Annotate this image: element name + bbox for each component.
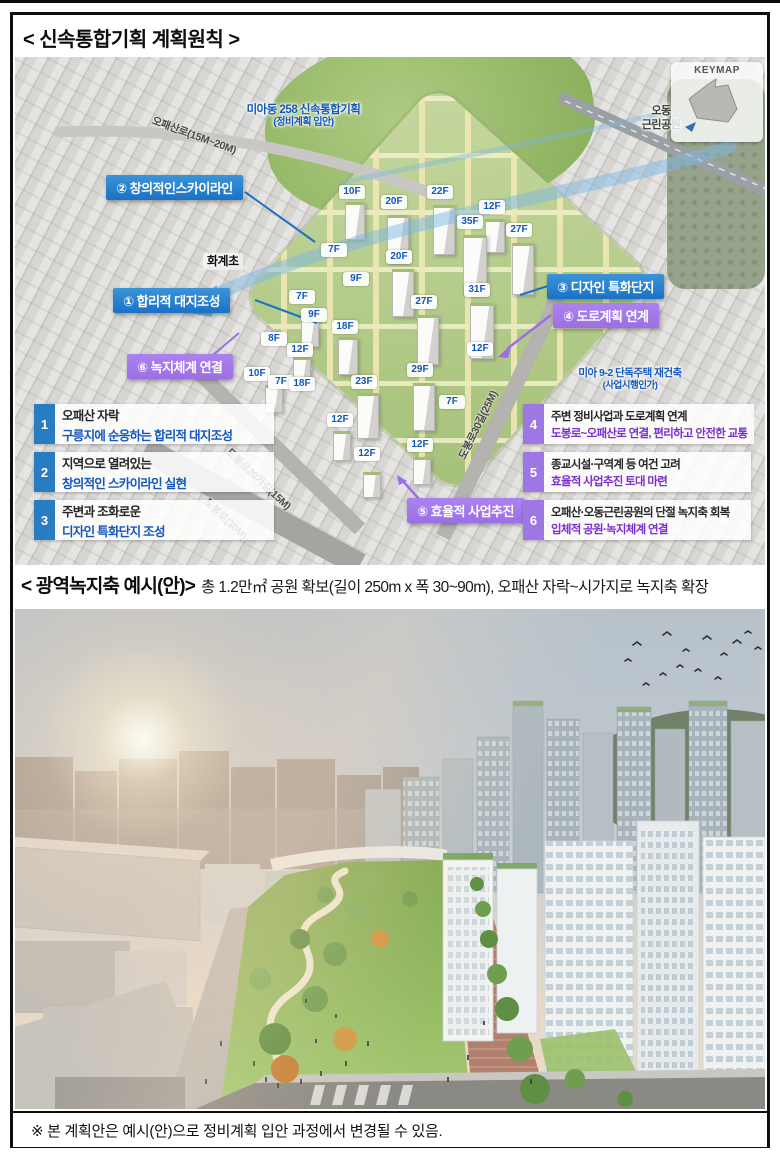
floor-label: 18F [289,377,315,391]
floor-label: 12F [354,447,380,461]
planning-document-page: < 신속통합기획 계획원칙 > [0,0,780,1161]
principle-4: 4 주변 정비사업과 도로계획 연계 도봉로~오패산로 연결, 편리하고 안전한… [523,404,751,444]
floor-label: 35F [457,215,483,229]
principle-1: 1 오패산 자락 구릉지에 순응하는 합리적 대지조성 [34,404,274,444]
keymap-shape [671,77,763,141]
principle-2: 2 지역으로 열려있는 창의적인 스카이라인 실현 [34,452,274,492]
principle-number: 6 [523,500,544,540]
footnote-bar: ※ 본 계획안은 예시(안)으로 정비계획 입안 과정에서 변경될 수 있음. [13,1111,767,1147]
principle-6: 6 오패산·오동근린공원의 단절 녹지축 회복 입체적 공원·녹지체계 연결 [523,500,751,540]
green-axis-rendering-image [15,609,765,1109]
site-name-line1: 미아동 258 신속통합기획 [211,103,396,117]
floor-label: 29F [407,363,433,377]
floor-label: 12F [467,342,493,356]
pointer-line-skyline [245,192,315,242]
document-frame: < 신속통합기획 계획원칙 > [10,12,770,1148]
principle-3: 3 주변과 조화로운 디자인 특화단지 조성 [34,500,274,540]
pointer-arrowhead-road [498,344,512,358]
principle-line1: 주변과 조화로운 [62,501,267,520]
principle-line2: 입체적 공원·녹지체계 연결 [551,521,744,537]
principle-line1: 오패산 자락 [62,405,267,424]
floor-label: 20F [386,250,412,264]
floor-label: 23F [351,375,377,389]
principle-line2: 창의적인 스카이라인 실현 [62,473,267,492]
floor-label: 18F [332,320,358,334]
principle-number: 4 [523,404,544,444]
birds-flock [625,631,761,685]
floor-label: 12F [287,343,313,357]
floor-label: 22F [427,185,453,199]
principle-number: 1 [34,404,55,444]
floor-label: 27F [411,295,437,309]
site-name-line2: (정비계획 입안) [211,117,396,130]
adjacent-line1: 미아 9-2 단독주택 재건축 [555,367,705,380]
floor-label: 27F [506,223,532,237]
principle-line2: 효율적 사업추진 토대 마련 [551,473,744,489]
rendering-scene [15,609,765,1109]
callout-design: ③ 디자인 특화단지 [547,274,664,299]
floor-label: 7F [439,395,465,409]
principle-line1: 주변 정비사업과 도로계획 연계 [551,408,747,424]
floor-label: 31F [464,283,490,297]
keymap-title: KEYMAP [671,65,763,76]
floor-label: 7F [321,243,347,257]
floor-label: 20F [381,195,407,209]
callout-green: ⑥ 녹지체계 연결 [127,354,233,379]
floor-label: 10F [244,367,270,381]
keymap-box: KEYMAP [671,62,763,142]
callout-skyline: ② 창의적인스카이라인 [106,175,243,200]
callout-business: ⑤ 효율적 사업추진 [407,498,524,523]
principle-line1: 오패산·오동근린공원의 단절 녹지축 회복 [551,504,744,520]
principle-line1: 지역으로 열려있는 [62,453,267,472]
footnote-text: ※ 본 계획안은 예시(안)으로 정비계획 입안 과정에서 변경될 수 있음. [31,1120,442,1141]
aerial-masterplan-image: 10F 20F 22F 12F 35F 27F 7F 20F 9F 31F 27… [15,57,765,565]
floor-label: 9F [301,308,327,322]
section2-title: < 광역녹지축 예시(안)>총 1.2만㎡ 공원 확보(길이 250m x 폭 … [21,571,708,598]
callout-land: ① 합리적 대지조성 [113,288,230,313]
floor-label: 12F [479,200,505,214]
principle-line2: 구릉지에 순응하는 합리적 대지조성 [62,425,267,444]
adjacent-project-label: 미아 9-2 단독주택 재건축 (사업시행인가) [555,367,705,392]
bottom-left-roof [55,1077,185,1109]
principle-line2: 도봉로~오패산로 연결, 편리하고 안전한 교통 [551,425,747,441]
floor-label: 7F [289,290,315,304]
pointer-line-green [213,333,239,355]
floor-label: 12F [327,413,353,427]
principle-5: 5 종교시설·구역계 등 여건 고려 효율적 사업추진 토대 마련 [523,452,751,492]
callout-road: ④ 도로계획 연계 [553,303,659,328]
principle-number: 5 [523,452,544,492]
floor-label: 10F [339,185,365,199]
site-name-label: 미아동 258 신속통합기획 (정비계획 입안) [211,103,396,130]
section2-title-rest: 총 1.2만㎡ 공원 확보(길이 250m x 폭 30~90m), 오패산 자… [201,579,708,596]
floor-label: 9F [343,272,369,286]
floor-label: 12F [407,438,433,452]
principle-number: 3 [34,500,55,540]
floor-label: 8F [261,332,287,346]
section2-title-bold: < 광역녹지축 예시(안)> [21,576,195,597]
top-border-line [0,0,780,3]
principle-line2: 디자인 특화단지 조성 [62,521,267,540]
school-label: 화계초 [203,253,243,270]
pointer-line-road [507,315,551,349]
adjacent-line2: (사업시행인가) [555,380,705,392]
section1-title: < 신속통합기획 계획원칙 > [23,23,240,52]
principle-number: 2 [34,452,55,492]
principle-line1: 종교시설·구역계 등 여건 고려 [551,456,744,472]
